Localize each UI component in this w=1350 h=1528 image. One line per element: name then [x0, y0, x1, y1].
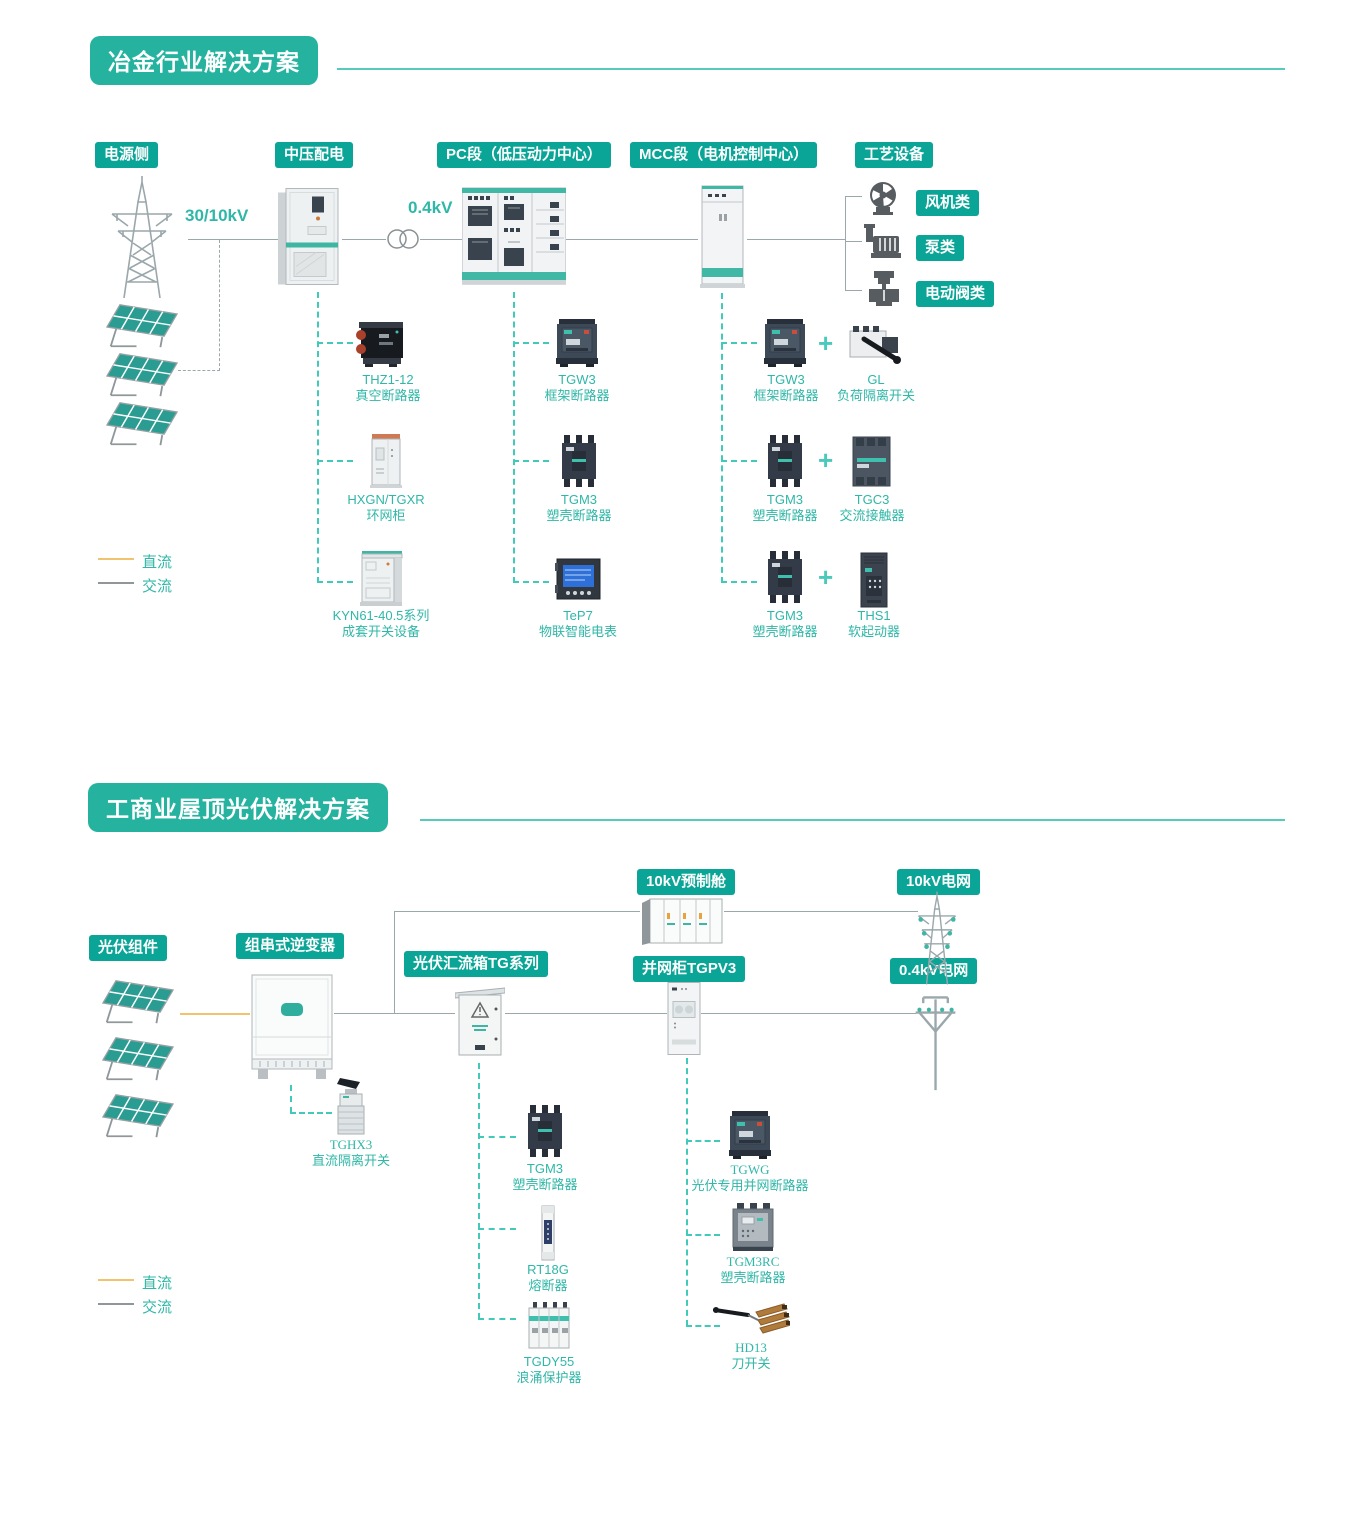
pv-modules-label: 光伏组件	[89, 935, 167, 961]
product-model: HD13	[731, 1340, 770, 1356]
product-label: TGHX3 直流隔离开关	[312, 1137, 390, 1168]
hd13-knife-switch-image	[712, 1302, 790, 1336]
plus-sign: +	[818, 330, 833, 356]
combiner-label: 光伏汇流箱TG系列	[404, 951, 548, 977]
utility-pole-icon	[910, 986, 962, 1094]
pump-type-label: 泵类	[916, 235, 964, 261]
product-connector	[513, 342, 549, 344]
grid-cabinet-label: 并网柜TGPV3	[633, 956, 745, 982]
tgm3-image	[766, 435, 804, 487]
fan-type-label: 风机类	[916, 190, 979, 216]
legend-ac-line	[98, 582, 134, 584]
valve-icon	[866, 270, 902, 310]
solar-panel-icon	[104, 352, 180, 398]
product-label: TGDY55 浪涌保护器	[516, 1354, 581, 1385]
section2-title: 工商业屋顶光伏解决方案	[88, 783, 388, 832]
product-desc: 浪涌保护器	[516, 1370, 581, 1386]
branch-line	[845, 196, 862, 197]
inverter-image	[250, 973, 334, 1083]
product-label: KYN61-40.5系列 成套开关设备	[333, 608, 430, 639]
tgdy55-spd-image	[527, 1302, 571, 1352]
tgm3-image	[560, 435, 598, 487]
ac-riser-line	[394, 911, 395, 1014]
ac-line	[420, 239, 462, 240]
product-connector	[478, 1136, 516, 1138]
product-desc: 框架断路器	[544, 388, 609, 404]
ac-line	[505, 1013, 667, 1014]
product-connector	[478, 1063, 480, 1319]
product-connector	[317, 292, 319, 583]
product-desc: 塑壳断路器	[512, 1177, 577, 1193]
legend-ac-label: 交流	[142, 1296, 172, 1317]
product-label: TeP7 物联智能电表	[539, 608, 617, 639]
product-label: TGM3 塑壳断路器	[752, 492, 817, 523]
product-desc: 光伏专用并网断路器	[691, 1178, 808, 1194]
branch-spine-line	[845, 196, 846, 291]
hxgn-cabinet-image	[368, 434, 404, 490]
product-connector	[290, 1112, 332, 1114]
legend-dc-line	[98, 1279, 134, 1281]
product-model: TGW3	[753, 372, 818, 388]
fan-icon	[864, 178, 902, 218]
product-desc: 交流接触器	[839, 508, 904, 524]
product-model: TGM3	[752, 608, 817, 624]
product-desc: 熔断器	[527, 1278, 569, 1294]
mcc-section-label: MCC段（电机控制中心）	[630, 142, 817, 168]
product-label: THZ1-12 真空断路器	[355, 372, 420, 403]
product-connector	[721, 342, 757, 344]
product-label: RT18G 熔断器	[527, 1262, 569, 1293]
product-desc: 软起动器	[848, 624, 900, 640]
mcc-cabinet-image	[698, 184, 747, 291]
legend-ac-label: 交流	[142, 575, 172, 596]
product-connector	[721, 293, 723, 583]
tgwg-breaker-image	[727, 1111, 773, 1159]
product-model: TGW3	[544, 372, 609, 388]
product-desc: 塑壳断路器	[752, 508, 817, 524]
product-desc: 刀开关	[731, 1356, 770, 1372]
grid-tower-icon	[908, 891, 966, 985]
grid-cabinet-image	[667, 981, 701, 1057]
kyn-cabinet-image	[358, 549, 404, 609]
product-connector	[686, 1140, 720, 1142]
inverter-label: 组串式逆变器	[236, 933, 344, 959]
pc-cabinet-image	[462, 184, 566, 290]
product-connector	[686, 1058, 688, 1326]
product-model: TGDY55	[516, 1354, 581, 1370]
tep7-meter-image	[555, 557, 602, 601]
product-model: KYN61-40.5系列	[333, 608, 430, 624]
legend-dc-label: 直流	[142, 1272, 172, 1293]
valve-type-label: 电动阀类	[916, 281, 994, 307]
product-connector	[478, 1228, 516, 1230]
product-model: GL	[837, 372, 915, 388]
tgm3-image	[766, 551, 804, 603]
prefab-container-image	[640, 895, 724, 948]
ac-line	[342, 239, 386, 240]
transformer-icon	[384, 227, 422, 251]
process-equipment-label: 工艺设备	[855, 142, 933, 168]
product-model: TGWG	[691, 1162, 808, 1178]
product-connector	[290, 1085, 292, 1113]
page: 冶金行业解决方案 电源侧 中压配电 PC段（低压动力中心） MCC段（电机控制中…	[0, 0, 1350, 1528]
legend-dc-label: 直流	[142, 551, 172, 572]
product-desc: 物联智能电表	[539, 624, 617, 640]
combiner-box-image	[455, 983, 505, 1063]
product-model: TGM3	[512, 1161, 577, 1177]
gl-switch-image	[846, 323, 904, 365]
product-model: TGC3	[839, 492, 904, 508]
product-desc: 成套开关设备	[333, 624, 430, 640]
ac-line	[747, 239, 845, 240]
product-connector	[513, 460, 549, 462]
solar-panel-icon	[104, 401, 180, 447]
product-label: HXGN/TGXR 环网柜	[347, 492, 424, 523]
transmission-tower-icon	[92, 174, 192, 298]
product-model: TGM3	[546, 492, 611, 508]
product-desc: 直流隔离开关	[312, 1153, 390, 1169]
product-label: GL 负荷隔离开关	[837, 372, 915, 403]
product-desc: 框架断路器	[753, 388, 818, 404]
branch-line	[845, 241, 862, 242]
product-desc: 真空断路器	[355, 388, 420, 404]
product-desc: 环网柜	[347, 508, 424, 524]
tgm3-image	[524, 1105, 566, 1157]
mv-distribution-label: 中压配电	[275, 142, 353, 168]
section1-title: 冶金行业解决方案	[90, 36, 318, 85]
product-connector	[317, 581, 353, 583]
hv-voltage-text: 30/10kV	[185, 206, 248, 226]
title-underline	[420, 819, 1285, 821]
thz1-12-image	[353, 322, 409, 368]
product-label: TGWG 光伏专用并网断路器	[691, 1162, 808, 1193]
power-side-label: 电源侧	[95, 142, 158, 168]
product-model: RT18G	[527, 1262, 569, 1278]
ac-line	[188, 239, 278, 240]
product-model: TeP7	[539, 608, 617, 624]
product-model: TGHX3	[312, 1137, 390, 1153]
product-desc: 塑壳断路器	[720, 1270, 785, 1286]
title-underline	[337, 68, 1285, 70]
product-connector	[478, 1318, 516, 1320]
ac-line	[724, 911, 918, 912]
product-label: HD13 刀开关	[731, 1340, 770, 1371]
ths1-softstarter-image	[859, 552, 889, 609]
tgw3-image	[764, 319, 806, 367]
ac-line	[701, 1013, 916, 1014]
tgc3-contactor-image	[851, 435, 892, 488]
dc-line	[180, 1013, 250, 1015]
product-model: THZ1-12	[355, 372, 420, 388]
product-model: TGM3	[752, 492, 817, 508]
product-model: HXGN/TGXR	[347, 492, 424, 508]
product-label: THS1 软起动器	[848, 608, 900, 639]
product-connector	[721, 460, 757, 462]
product-label: TGW3 框架断路器	[753, 372, 818, 403]
product-connector	[686, 1234, 720, 1236]
branch-line	[845, 290, 862, 291]
product-connector	[721, 581, 757, 583]
product-label: TGM3 塑壳断路器	[546, 492, 611, 523]
product-model: THS1	[848, 608, 900, 624]
lv-voltage-text: 0.4kV	[408, 198, 452, 218]
product-connector	[317, 460, 353, 462]
tgm3rc-breaker-image	[731, 1203, 775, 1251]
legend-dc-line	[98, 558, 134, 560]
product-model: TGM3RC	[720, 1254, 785, 1270]
product-label: TGW3 框架断路器	[544, 372, 609, 403]
product-label: TGC3 交流接触器	[839, 492, 904, 523]
product-label: TGM3RC 塑壳断路器	[720, 1254, 785, 1285]
dc-drop-line	[219, 240, 220, 371]
tghx3-switch-image	[333, 1075, 369, 1139]
legend-ac-line	[98, 1303, 134, 1305]
solar-panel-icon	[100, 1093, 176, 1139]
ac-line	[566, 239, 698, 240]
product-desc: 负荷隔离开关	[837, 388, 915, 404]
plus-sign: +	[818, 564, 833, 590]
prefab-cabin-label: 10kV预制舱	[637, 869, 735, 895]
plus-sign: +	[818, 447, 833, 473]
dc-drop-line	[178, 370, 220, 371]
mv-cabinet-image	[278, 186, 342, 288]
tgw3-image	[556, 319, 598, 367]
solar-panel-icon	[104, 303, 180, 349]
product-desc: 塑壳断路器	[546, 508, 611, 524]
pump-icon	[862, 224, 904, 262]
product-label: TGM3 塑壳断路器	[752, 608, 817, 639]
rt18g-fuse-image	[539, 1205, 557, 1261]
pc-section-label: PC段（低压动力中心）	[437, 142, 611, 168]
product-desc: 塑壳断路器	[752, 624, 817, 640]
product-connector	[513, 581, 549, 583]
ac-line	[394, 911, 640, 912]
product-connector	[513, 292, 515, 583]
solar-panel-icon	[100, 1036, 176, 1082]
product-label: TGM3 塑壳断路器	[512, 1161, 577, 1192]
product-connector	[317, 342, 353, 344]
solar-panel-icon	[100, 979, 176, 1025]
